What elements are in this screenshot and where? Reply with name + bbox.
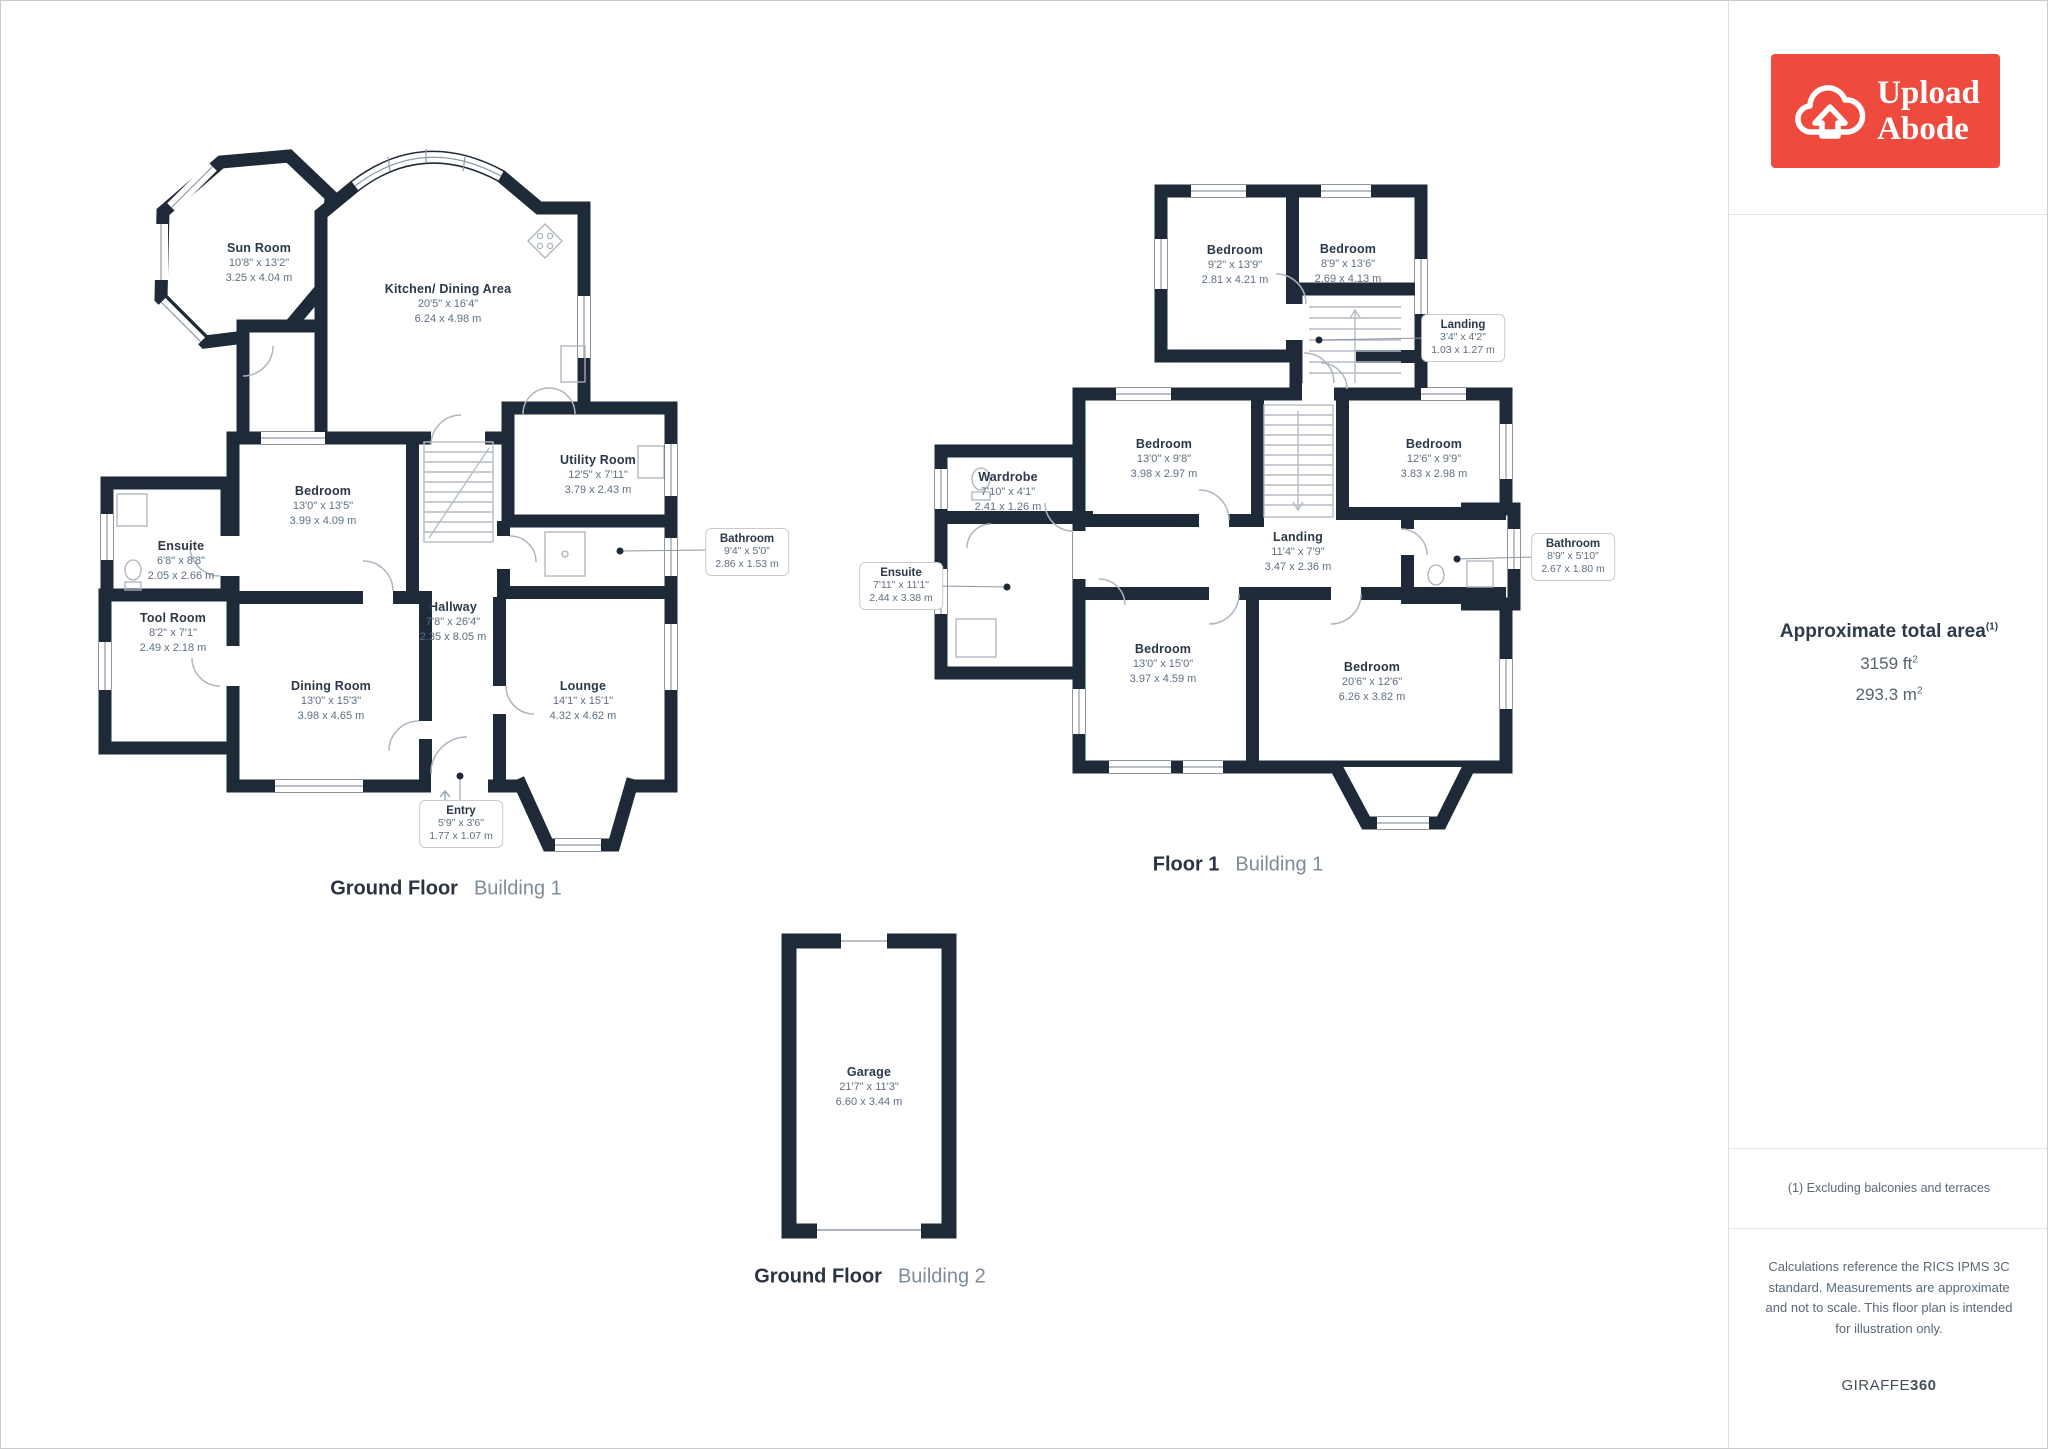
callout-gf-bathroom: Bathroom9'4" x 5'0"2.86 x 1.53 m: [705, 528, 789, 576]
callout-f1-ensuite: Ensuite7'11" x 11'1"2.44 x 3.38 m: [859, 562, 943, 610]
room-label-sun-room: Sun Room10'8" x 13'2"3.25 x 4.04 m: [226, 241, 293, 285]
floorplan-page: Sun Room10'8" x 13'2"3.25 x 4.04 m Kitch…: [0, 0, 2048, 1449]
logo-wordmark: Upload Abode: [1877, 75, 1980, 147]
footnote: (1) Excluding balconies and terraces: [1729, 1181, 2048, 1195]
room-label-tool-room: Tool Room8'2" x 7'1"2.49 x 2.18 m: [140, 611, 207, 655]
room-label-f1-bedroom-4: Bedroom12'6" x 9'9"3.83 x 2.98 m: [1401, 437, 1468, 481]
sidebar-divider-1: [1729, 214, 2048, 215]
callout-f1-bathroom: Bathroom8'9" x 5'10"2.67 x 1.80 m: [1531, 533, 1615, 581]
room-label-garage: Garage21'7" x 11'3"6.60 x 3.44 m: [836, 1065, 903, 1109]
area-sqft: 3159 ft2: [1729, 654, 2048, 674]
caption-ground-floor-building-1: Ground FloorBuilding 1: [330, 878, 562, 901]
caption-ground-floor-building-2: Ground FloorBuilding 2: [754, 1266, 986, 1289]
upload-abode-cloud-icon: [1791, 78, 1867, 144]
room-label-utility-room: Utility Room12'5" x 7'11"3.79 x 2.43 m: [560, 453, 636, 497]
room-label-gf-ensuite: Ensuite6'8" x 8'8"2.05 x 2.66 m: [148, 539, 215, 583]
room-label-wardrobe: Wardrobe7'10" x 4'1"2.41 x 1.26 m: [975, 470, 1042, 514]
callout-entry: Entry5'9" x 3'6"1.77 x 1.07 m: [419, 800, 503, 848]
approximate-total-area-block: Approximate total area(1) 3159 ft2 293.3…: [1729, 621, 2048, 705]
area-title: Approximate total area(1): [1729, 621, 2048, 643]
sidebar-divider-3: [1729, 1228, 2048, 1229]
callout-f1-landing-small: Landing3'4" x 4'2"1.03 x 1.27 m: [1421, 314, 1505, 362]
upload-abode-logo: Upload Abode: [1771, 54, 2000, 168]
room-label-f1-bedroom-2: Bedroom8'9" x 13'6"2.69 x 4.13 m: [1315, 242, 1382, 286]
ground-floor-building1-plan: [93, 146, 803, 861]
room-label-gf-bedroom: Bedroom13'0" x 13'5"3.99 x 4.09 m: [290, 484, 357, 528]
room-label-f1-bedroom-1: Bedroom9'2" x 13'9"2.81 x 4.21 m: [1202, 243, 1269, 287]
room-label-lounge: Lounge14'1" x 15'1"4.32 x 4.62 m: [550, 679, 617, 723]
room-label-f1-bedroom-3: Bedroom13'0" x 9'8"3.98 x 2.97 m: [1131, 437, 1198, 481]
sidebar-divider-2: [1729, 1148, 2048, 1149]
area-sqm: 293.3 m2: [1729, 685, 2048, 705]
caption-floor1-building-1: Floor 1Building 1: [1153, 854, 1324, 877]
disclaimer-text: Calculations reference the RICS IPMS 3C …: [1759, 1257, 2019, 1339]
room-label-f1-landing: Landing11'4" x 7'9"3.47 x 2.36 m: [1265, 530, 1332, 574]
giraffe360-brand: GIRAFFE360: [1729, 1377, 2048, 1394]
room-label-dining-room: Dining Room13'0" x 15'3"3.98 x 4.65 m: [291, 679, 371, 723]
room-label-f1-bedroom-6: Bedroom20'6" x 12'6"6.26 x 3.82 m: [1339, 660, 1406, 704]
room-label-hallway: Hallway7'8" x 26'4"2.35 x 8.05 m: [420, 600, 487, 644]
room-label-f1-bedroom-5: Bedroom13'0" x 15'0"3.97 x 4.59 m: [1130, 642, 1197, 686]
room-label-kitchen-dining: Kitchen/ Dining Area20'5" x 16'4"6.24 x …: [385, 282, 511, 326]
info-sidebar: Upload Abode Approximate total area(1) 3…: [1728, 1, 2048, 1449]
